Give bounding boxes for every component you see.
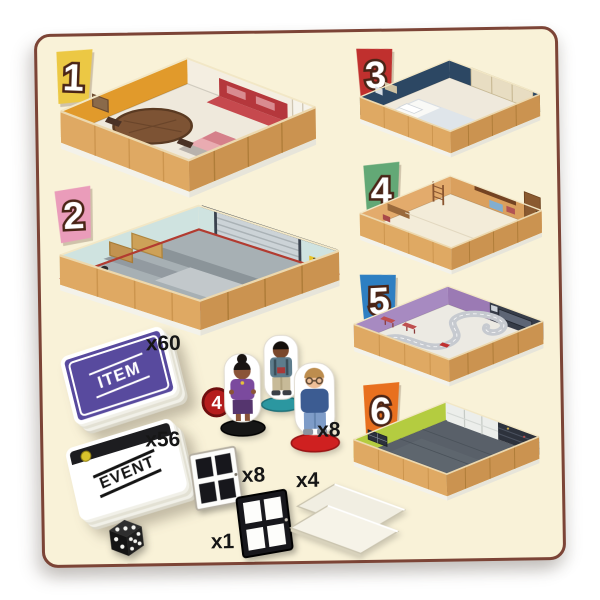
room-tile-4-study — [353, 169, 549, 278]
black-window-count: x1 — [211, 530, 235, 554]
event-card-label: EVENT — [93, 449, 162, 498]
room-tile-5-playroom — [347, 279, 551, 390]
black-die-icon — [102, 513, 153, 566]
black-window-token — [233, 485, 296, 562]
white-window-count: x8 — [242, 464, 266, 488]
character-count: x8 — [317, 418, 341, 442]
game-components-sheet: 1 2 3 4 5 6 — [34, 26, 566, 568]
item-deck-count: x60 — [146, 332, 181, 357]
standee-woman-purple — [220, 354, 265, 437]
room-tile-3-bedroom — [353, 53, 547, 161]
character-standees — [222, 328, 350, 466]
components-product-photo: 1 2 3 4 5 6 — [0, 0, 600, 600]
room-tile-1-living-room — [51, 49, 325, 203]
floor-tile-count: x4 — [296, 469, 320, 493]
room-tile-2-garage — [49, 196, 349, 341]
event-deck-count: x56 — [145, 428, 180, 453]
quantity-badge-number: 4 — [211, 392, 222, 413]
